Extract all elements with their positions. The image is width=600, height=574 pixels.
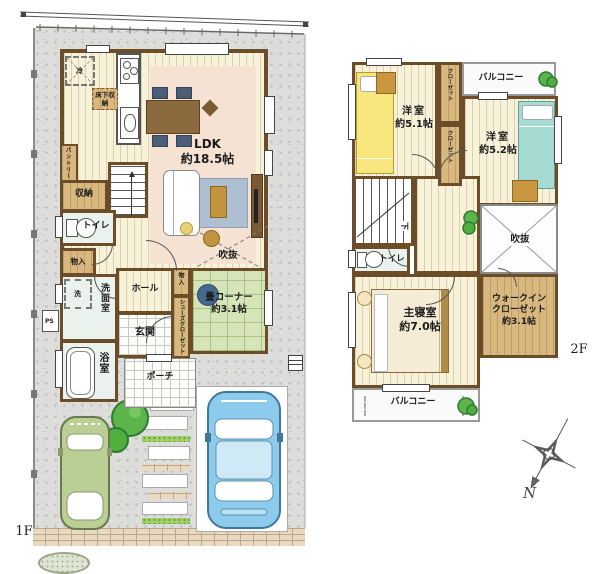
window	[348, 292, 356, 348]
room-bath	[60, 340, 118, 402]
pantry-label: パントリー	[64, 147, 70, 180]
window	[55, 350, 63, 388]
desk	[512, 180, 538, 202]
floor-2f-label: 2F	[564, 342, 594, 358]
bedroom1-label: 洋室 約5.1帖	[388, 106, 440, 131]
window	[348, 250, 356, 268]
void-2f-label: 吹抜	[502, 234, 538, 246]
approach-brick-1	[142, 464, 190, 471]
wic-size: 約3.1帖	[482, 317, 556, 328]
kitchen-sink	[120, 107, 139, 139]
floor-storage-box: 床下収納	[92, 88, 118, 110]
floor-storage-label: 床下収納	[94, 91, 116, 108]
master-size: 約7.0帖	[382, 320, 458, 334]
refrigerator: 冷	[65, 56, 95, 86]
dining-chair	[176, 87, 192, 99]
window	[348, 84, 356, 140]
entrance-door	[146, 354, 172, 362]
approach-slab-5	[142, 502, 188, 515]
ps-label: PS	[45, 318, 54, 326]
closet-left-label: 物入	[62, 257, 94, 266]
window	[264, 150, 273, 176]
window	[55, 284, 63, 304]
compass-north-label: N	[522, 484, 537, 502]
blue-car	[205, 389, 283, 531]
floor-1f-label: 1F	[10, 524, 38, 540]
pillow-round	[357, 354, 372, 369]
wic-label: ウォークイン クローゼット 約3.1帖	[482, 294, 556, 328]
hall-label: ホール	[119, 284, 171, 295]
nightstand	[376, 72, 396, 94]
washing-machine: 洗	[64, 279, 92, 309]
ldk-label: LDK 約18.5帖	[165, 137, 250, 167]
floor-plan-page: 冷 床下収納 パントリー 収納	[0, 0, 600, 574]
wic-line1: ウォークイン	[482, 294, 556, 305]
bathtub	[66, 347, 95, 399]
window	[86, 45, 110, 53]
approach-slab-4	[142, 474, 188, 488]
window	[165, 43, 229, 55]
dining-table	[146, 100, 200, 134]
window	[264, 290, 273, 326]
stove	[120, 58, 139, 84]
bedroom2-name: 洋室	[470, 132, 526, 145]
window	[554, 116, 562, 164]
kitchen-counter	[116, 53, 141, 145]
bay-window	[264, 96, 275, 134]
master-bedroom-label: 主寝室 約7.0帖	[382, 306, 458, 334]
balcony-bottom-shrub	[456, 396, 478, 418]
storage-label: 収納	[64, 189, 104, 200]
grass-joint-2	[142, 518, 190, 524]
closet-2f-1-label: クローゼット	[446, 68, 452, 101]
void-1f-label: 吹抜	[208, 250, 248, 262]
bath-label: 浴室	[97, 352, 107, 374]
floor-cushion	[180, 222, 193, 235]
toilet-1f-label: トイレ	[78, 221, 114, 232]
fridge-label: 冷	[76, 67, 83, 76]
dining-chair	[152, 87, 168, 99]
ottoman	[203, 230, 220, 247]
stairs-2f: 下	[352, 176, 414, 246]
balcony-door	[382, 384, 430, 392]
tv	[254, 189, 258, 223]
ldk-name: LDK	[165, 137, 250, 152]
bedroom1-size: 約5.1帖	[388, 119, 440, 132]
washer-label: 洗	[74, 290, 81, 299]
ps-box: PS	[42, 310, 59, 332]
ldk-size: 約18.5帖	[165, 152, 250, 167]
void-1f-cross	[188, 226, 268, 272]
master-name: 主寝室	[382, 306, 458, 320]
wic-line2: クローゼット	[482, 305, 556, 316]
coffee-table	[210, 186, 227, 218]
garden-planter	[38, 552, 90, 574]
porch-label: ポーチ	[130, 372, 190, 383]
bedroom2-label: 洋室 約5.2帖	[470, 132, 526, 157]
window	[55, 216, 63, 238]
tatami-name: 畳コーナー	[192, 292, 266, 304]
compass-rose: N	[505, 410, 591, 506]
green-car	[58, 414, 112, 532]
balcony-door	[478, 92, 508, 100]
balcony-top-label: バルコニー	[466, 73, 536, 84]
window	[366, 58, 402, 66]
bedroom2-size: 約5.2帖	[470, 145, 526, 158]
tatami-size: 約3.1帖	[192, 304, 266, 316]
balcony-top-shrub	[538, 70, 558, 90]
bedroom1-name: 洋室	[388, 106, 440, 119]
tatami-label: 畳コーナー 約3.1帖	[192, 292, 266, 316]
hall-plant	[460, 210, 482, 236]
pillow	[522, 105, 553, 120]
approach-slab-3	[148, 446, 190, 460]
pillow-round	[357, 291, 372, 306]
closet-hall-label: 物入	[177, 272, 183, 286]
utility-meter-box	[288, 355, 303, 371]
approach-brick-2	[148, 492, 190, 499]
stairs-down-label: 下	[399, 221, 409, 231]
balcony-bottom-label: バルコニー	[378, 397, 448, 408]
shoes-closet-label: シューズクローゼット	[178, 299, 184, 354]
